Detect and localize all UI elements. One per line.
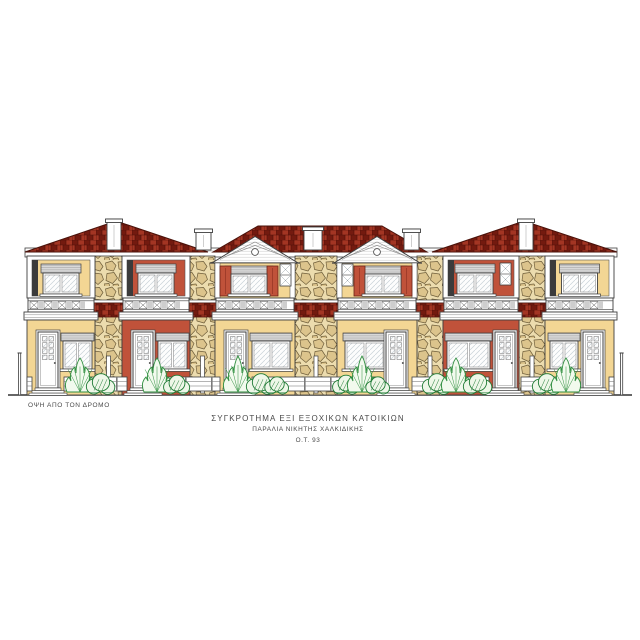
window-pane — [45, 275, 60, 292]
door-pane — [43, 355, 48, 360]
window-sill — [454, 294, 496, 296]
unit-3-upper-wall — [215, 263, 295, 298]
balcony-slab — [119, 312, 193, 320]
loggia-shadow — [32, 260, 38, 296]
door-knob — [54, 362, 56, 364]
window-pane — [459, 275, 474, 292]
door-pane — [138, 343, 143, 348]
door-pane — [588, 337, 593, 342]
door-pane — [588, 343, 593, 348]
door-pane — [588, 355, 593, 360]
front-fence — [27, 377, 614, 391]
roller-shutter-box — [343, 333, 387, 341]
chimney-cap — [403, 229, 421, 233]
pediment-vent — [374, 249, 381, 256]
door-pane — [49, 349, 54, 354]
chimney-cap — [518, 219, 535, 223]
window-pane — [366, 343, 383, 367]
elevation-drawing — [0, 0, 640, 640]
roller-shutter-box — [359, 266, 407, 274]
unit-5-balcony — [440, 298, 522, 320]
fence-segment — [609, 377, 614, 391]
balcony-slab — [542, 312, 617, 320]
balcony-railing — [444, 298, 518, 312]
door-pane — [594, 343, 599, 348]
corner-trim — [337, 263, 342, 298]
window-pane — [470, 343, 489, 367]
entry-steps — [29, 388, 67, 395]
roller-shutter-box — [250, 333, 292, 341]
door-pane — [43, 343, 48, 348]
window-pane — [157, 275, 172, 292]
door-pane — [391, 349, 396, 354]
window-pane — [62, 275, 77, 292]
chimney-cap — [195, 229, 213, 233]
block-number-label: Ο.Τ. 93 — [0, 437, 616, 444]
door-pane — [397, 337, 402, 342]
roller-shutter-box — [548, 333, 580, 341]
roller-shutter-box — [41, 264, 81, 273]
door-pane — [231, 355, 236, 360]
door-pane — [506, 337, 511, 342]
boundary-pole-right — [620, 353, 624, 395]
door-pane — [237, 343, 242, 348]
door-knob — [242, 362, 244, 364]
door-pane — [500, 355, 505, 360]
roller-shutter-box — [445, 333, 492, 341]
fence-post — [304, 377, 306, 391]
door-pane — [231, 349, 236, 354]
door-pane — [500, 349, 505, 354]
door-pane — [144, 337, 149, 342]
door-pane — [397, 349, 402, 354]
door-pane — [588, 349, 593, 354]
window-pane — [367, 276, 382, 292]
window-pane — [476, 275, 491, 292]
elevation-sheet: ΟΨΗ ΑΠΟ ΤΟΝ ΔΡΟΜΟ ΣΥΓΚΡΟΤΗΜΑ ΕΞΙ ΕΞΟΧΙΚΩ… — [0, 0, 640, 640]
drawing-title: ΣΥΓΚΡΟΤΗΜΑ ΕΞΙ ΕΞΟΧΙΚΩΝ ΚΑΤΟΙΚΙΩΝ — [0, 414, 616, 423]
fence-post — [211, 377, 213, 391]
unit-6-upper-loggia — [545, 256, 614, 298]
door-knob — [511, 362, 513, 364]
door-pane — [391, 337, 396, 342]
chimney-cap — [106, 219, 123, 223]
window-pane — [254, 343, 270, 367]
window-pane — [140, 275, 155, 292]
balcony-slab — [440, 312, 522, 320]
bush-foliage — [270, 377, 284, 391]
roller-shutter-box — [156, 333, 189, 341]
unit-2-upper-loggia — [122, 256, 190, 298]
door-knob — [599, 362, 601, 364]
door-pane — [49, 337, 54, 342]
window-pane — [233, 276, 248, 292]
window-pane — [272, 343, 288, 367]
window-sill — [249, 369, 293, 371]
corner-trim — [215, 263, 220, 298]
door-pane — [43, 337, 48, 342]
chimney-left-roof — [106, 219, 123, 250]
chimney-cap — [303, 227, 324, 231]
unit-1-upper-loggia — [27, 256, 95, 298]
window-pane — [581, 275, 596, 292]
door-knob — [402, 362, 404, 364]
window-sill — [559, 294, 601, 296]
door-knob — [149, 362, 151, 364]
door-pane — [391, 343, 396, 348]
chimney-pier-left — [195, 229, 213, 250]
fence-post — [330, 377, 332, 391]
door-pane — [397, 343, 402, 348]
unit-4-balcony — [334, 298, 420, 320]
boundary-pole-left — [18, 353, 22, 395]
roller-shutter-box — [560, 264, 600, 273]
door-pane — [391, 355, 396, 360]
door-pane — [506, 349, 511, 354]
roller-shutter-box — [136, 264, 176, 273]
door-pane — [231, 337, 236, 342]
door-pane — [49, 343, 54, 348]
unit-2-balcony — [119, 298, 193, 320]
balcony-slab — [24, 312, 98, 320]
roller-shutter-box — [455, 264, 495, 273]
door-pane — [506, 355, 511, 360]
balcony-slab — [334, 312, 420, 320]
roller-shutter-box — [61, 333, 94, 341]
door-pane — [397, 355, 402, 360]
door-pane — [237, 337, 242, 342]
bush-foliage — [371, 377, 385, 391]
drawing-subtitle: ΠΑΡΑΛΙΑ ΝΙΚΗΤΗΣ ΧΑΛΚΙΔΙΚΗΣ — [0, 426, 616, 433]
chimney-pier-right — [403, 229, 421, 250]
window-sill — [228, 294, 270, 296]
door-pane — [49, 355, 54, 360]
pediment-vent — [252, 249, 259, 256]
window-sill — [362, 294, 404, 296]
window-sill — [135, 294, 177, 296]
door-pane — [144, 343, 149, 348]
window-pane — [552, 343, 563, 367]
entrance-door — [495, 332, 515, 388]
door-pane — [231, 343, 236, 348]
unit-5-upper-loggia — [443, 256, 519, 298]
window-pane — [160, 343, 172, 367]
corner-trim — [412, 263, 417, 298]
door-pane — [138, 355, 143, 360]
door-pane — [144, 355, 149, 360]
door-pane — [43, 349, 48, 354]
window-pane — [384, 276, 399, 292]
chimney-right-roof — [518, 219, 535, 250]
door-pane — [594, 349, 599, 354]
entrance-door — [583, 332, 603, 388]
chimney-center — [303, 227, 324, 250]
door-pane — [594, 355, 599, 360]
balcony-slab — [212, 312, 298, 320]
window-pane — [250, 276, 265, 292]
entrance-door — [386, 332, 406, 388]
unit-4-upper-wall — [337, 263, 417, 298]
window-pane — [564, 275, 579, 292]
door-pane — [506, 343, 511, 348]
fence-segment — [27, 377, 32, 391]
entrance-door — [38, 332, 58, 388]
unit-1-balcony — [24, 298, 98, 320]
unit-6-balcony — [542, 298, 617, 320]
bush-foliage — [169, 375, 185, 391]
door-pane — [500, 343, 505, 348]
window-sill — [40, 294, 82, 296]
window-pane — [174, 343, 186, 367]
pier-tile-cap — [293, 303, 339, 317]
door-pane — [594, 337, 599, 342]
door-pane — [237, 349, 242, 354]
door-pane — [144, 349, 149, 354]
loggia-shadow — [127, 260, 133, 296]
roller-shutter-box — [225, 266, 273, 274]
view-label: ΟΨΗ ΑΠΟ ΤΟΝ ΔΡΟΜΟ — [28, 402, 110, 409]
door-pane — [138, 349, 143, 354]
loggia-shadow — [448, 260, 454, 296]
window-pane — [65, 343, 77, 367]
door-pane — [138, 337, 143, 342]
loggia-shadow — [550, 260, 556, 296]
fence-post — [116, 377, 118, 391]
unit-3-balcony — [212, 298, 298, 320]
door-pane — [500, 337, 505, 342]
